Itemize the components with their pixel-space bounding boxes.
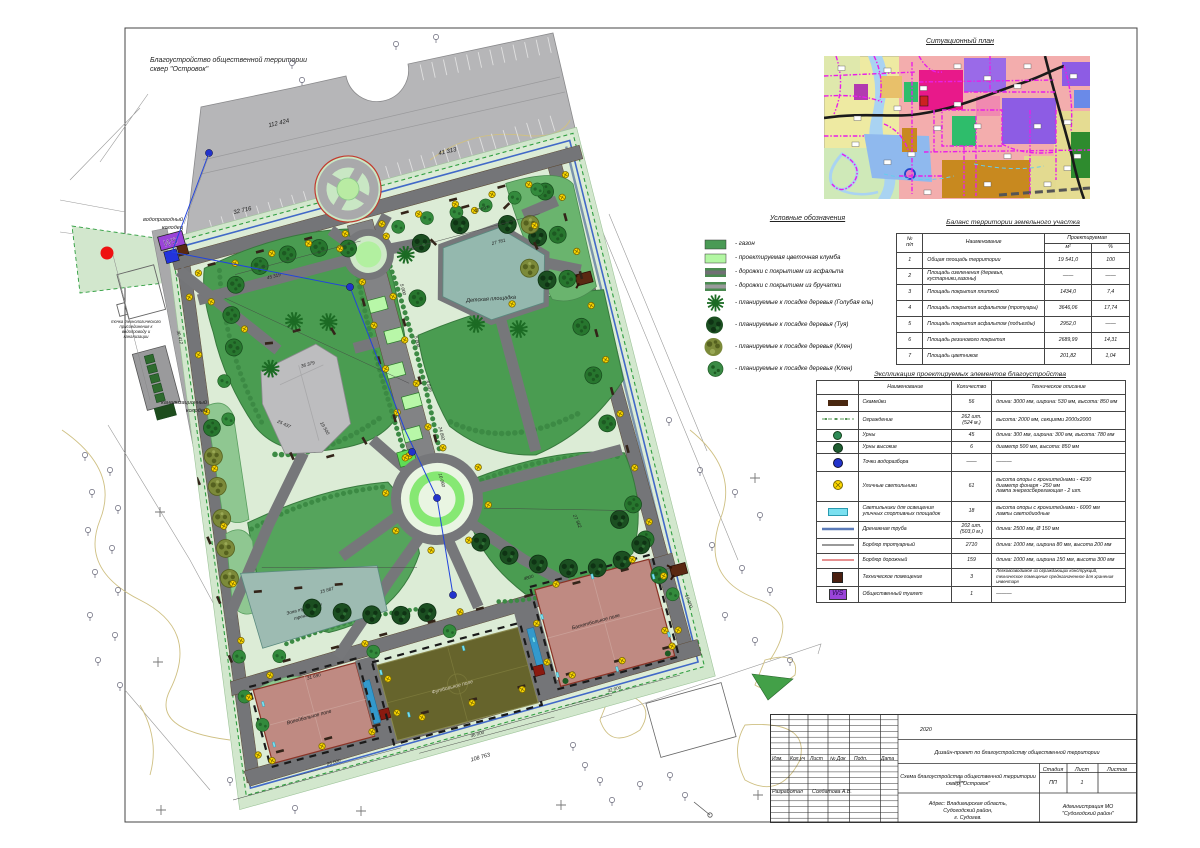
svg-text:сквер "Островок": сквер "Островок" <box>946 781 991 787</box>
svg-text:Дата: Дата <box>880 756 894 762</box>
svg-text:Кол.уч: Кол.уч <box>790 756 805 762</box>
svg-text:Судогодский район,: Судогодский район, <box>943 807 992 814</box>
svg-text:Адрес: Владимирская область,: Адрес: Владимирская область, <box>928 801 1007 807</box>
svg-text:канализационный: канализационный <box>161 399 207 406</box>
svg-text:Разработал: Разработал <box>772 789 803 795</box>
svg-text:Администрация МО: Администрация МО <box>1062 804 1114 810</box>
svg-text:Подп.: Подп. <box>854 756 867 762</box>
svg-text:№ Док: № Док <box>830 756 846 762</box>
svg-text:колодец: колодец <box>186 408 207 414</box>
svg-text:Дизайн-проект по благоустройст: Дизайн-проект по благоустройству обществ… <box>933 749 1099 756</box>
svg-text:Солдатова А.В.: Солдатова А.В. <box>812 789 852 795</box>
svg-text:канализации: канализации <box>124 334 150 339</box>
svg-text:колодец: колодец <box>162 225 183 231</box>
svg-text:Лист: Лист <box>1074 767 1090 773</box>
svg-text:"Судогодский район": "Судогодский район" <box>1062 810 1115 817</box>
svg-text:Изм.: Изм. <box>772 756 783 762</box>
svg-text:108 763: 108 763 <box>470 752 492 763</box>
svg-text:Лист: Лист <box>809 756 823 762</box>
svg-text:Листов: Листов <box>1106 767 1127 773</box>
svg-text:водопроводный: водопроводный <box>143 216 183 223</box>
svg-text:сквер "Островок": сквер "Островок" <box>150 66 209 73</box>
svg-text:ПП: ПП <box>1049 780 1057 786</box>
svg-text:Схема благоустройства обществе: Схема благоустройства общественной терри… <box>900 773 1036 780</box>
svg-text:г. Судогев.: г. Судогев. <box>954 815 982 821</box>
svg-text:Благоустройство общественной т: Благоустройство общественной территории <box>150 56 307 64</box>
svg-text:2020: 2020 <box>919 727 932 733</box>
svg-text:Стадия: Стадия <box>1043 767 1064 773</box>
svg-text:1: 1 <box>1081 780 1084 786</box>
